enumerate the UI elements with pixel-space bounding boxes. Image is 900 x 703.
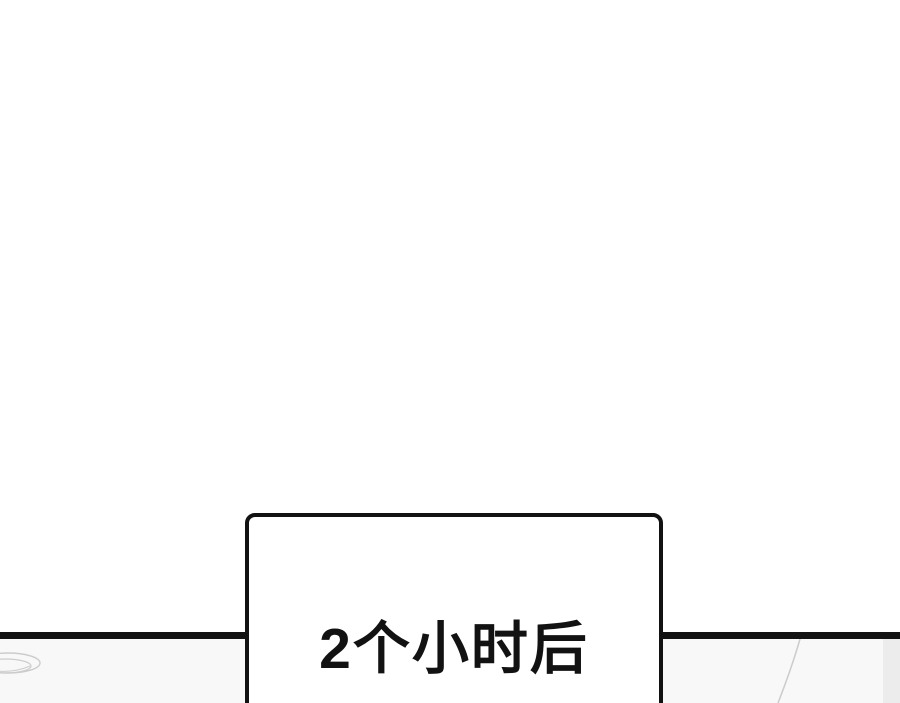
caption-box: 2个小时后 — [245, 513, 663, 703]
plate-rim-sketch-icon — [0, 651, 44, 679]
wall-shading-band — [883, 637, 900, 703]
caption-text: 2个小时后 — [249, 621, 659, 678]
diagonal-sketch-line — [770, 637, 806, 703]
comic-page: 2个小时后 — [0, 0, 900, 703]
